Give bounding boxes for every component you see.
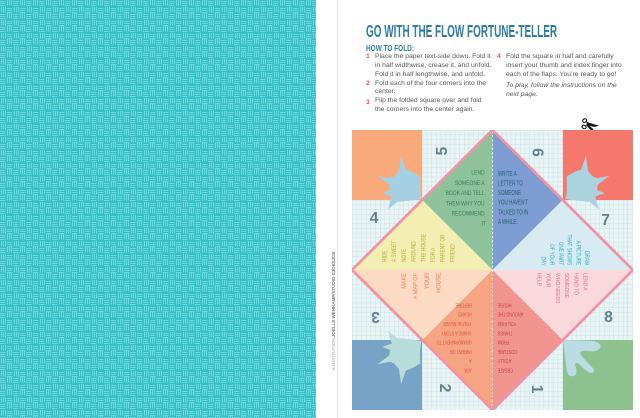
svg-text:4: 4 xyxy=(370,210,379,227)
svg-text:3: 3 xyxy=(371,308,380,325)
svg-text:2: 2 xyxy=(436,384,453,393)
svg-text:5: 5 xyxy=(434,146,451,155)
svg-text:6: 6 xyxy=(529,148,546,157)
svg-text:7: 7 xyxy=(601,212,610,229)
svg-text:8: 8 xyxy=(604,309,613,326)
svg-text:1: 1 xyxy=(528,385,545,394)
